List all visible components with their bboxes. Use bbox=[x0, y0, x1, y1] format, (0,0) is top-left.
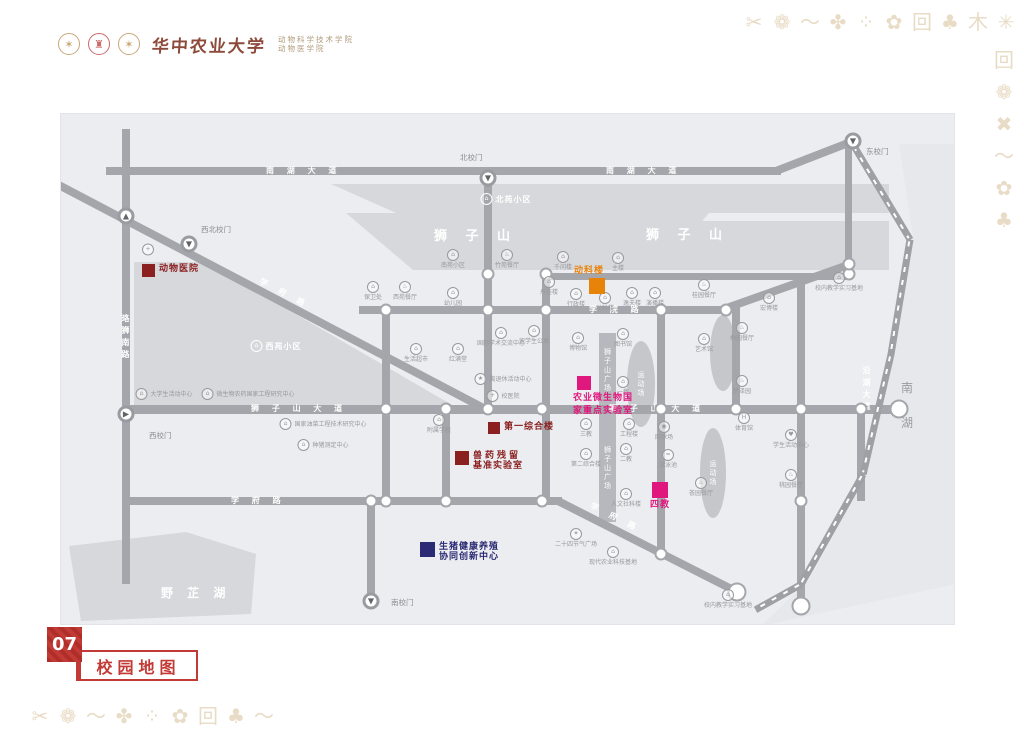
poi-building-icon: ⌂ bbox=[367, 281, 379, 293]
road-lakeside-dash-2 bbox=[887, 239, 913, 356]
poi-label: 千问楼 bbox=[554, 264, 572, 271]
poi-label: 第二综合楼 bbox=[571, 461, 601, 468]
poi-building-icon: ⌂ bbox=[297, 439, 309, 451]
college-line2: 动物医学院 bbox=[278, 44, 354, 53]
poi-label: 大学生活动中心 bbox=[150, 391, 192, 398]
map-poi: ⌂附属学校 bbox=[427, 414, 451, 434]
decor-pattern-top: ✂❁〜✤⁘✿回♣木✳✖ bbox=[742, 10, 1024, 34]
highlight-dongke-building: 动科楼 bbox=[574, 266, 605, 294]
page-header: ✶ ♜ ✶ 华中农业大学 动物科学技术学院 动物医学院 bbox=[58, 26, 354, 62]
poi-building-icon: ⌂ bbox=[447, 249, 459, 261]
poi-label: 荟园餐厅 bbox=[689, 490, 713, 497]
highlight-fourth-teaching: 四教 bbox=[652, 482, 670, 510]
poi-building-icon: ⌂ bbox=[433, 414, 445, 426]
poi-label: 微生物农药国家工程研究中心 bbox=[216, 391, 294, 398]
poi-label: 网球场 bbox=[655, 434, 673, 441]
lion-hill-west-label: 狮 子 山 bbox=[434, 225, 517, 244]
gate-南校门: ▼ bbox=[363, 593, 380, 610]
map-poi: ⌂图书馆 bbox=[614, 328, 632, 348]
road-node bbox=[482, 268, 495, 281]
map-poi: ⌂大学生活动中心 bbox=[135, 388, 192, 400]
road-xuefu bbox=[122, 497, 562, 505]
map-poi: ⌂国家油菜工程技术研究中心 bbox=[279, 418, 366, 430]
highlight-animal-hospital: 动物医院 bbox=[142, 264, 199, 277]
poi-label: 图书馆 bbox=[614, 341, 632, 348]
road-node bbox=[855, 403, 868, 416]
map-poi: ⌂种猪测定中心 bbox=[297, 439, 348, 451]
road-node bbox=[540, 304, 553, 317]
poi-label: 艺术馆 bbox=[695, 346, 713, 353]
map-poi: ≈游泳池 bbox=[659, 449, 677, 469]
poi-label: 北苑小区 bbox=[496, 196, 532, 203]
map-poi: ♨梅园餐厅 bbox=[730, 322, 754, 342]
poi-label: 演播楼 bbox=[646, 300, 664, 307]
vet-drug-lab-label-2: 基准实验室 bbox=[473, 461, 523, 471]
map-poi: ♨西苑餐厅 bbox=[393, 281, 417, 301]
poi-label: 幼儿园 bbox=[444, 300, 462, 307]
poi-label: 留学生公寓 bbox=[519, 338, 549, 345]
poi-building-icon: ⌂ bbox=[620, 488, 632, 500]
road-node bbox=[380, 495, 393, 508]
poi-building-icon: ⌂ bbox=[626, 287, 638, 299]
poi-building-icon: ⌂ bbox=[580, 418, 592, 430]
poi-building-icon: ⌂ bbox=[623, 418, 635, 430]
decor-glyph-icon: ✖ bbox=[992, 112, 1016, 136]
map-poi: ⌂保卫处 bbox=[364, 281, 382, 301]
gate-东校门: ▼ bbox=[845, 133, 862, 150]
poi-label: 附属学校 bbox=[427, 427, 451, 434]
vet-drug-lab-label-1: 兽药残留 bbox=[473, 451, 523, 461]
page-title: 校园地图 bbox=[76, 650, 198, 681]
road-name-label: 珞狮南路 bbox=[120, 314, 131, 362]
poi-building-icon: ⌂ bbox=[481, 193, 493, 205]
road-node bbox=[655, 548, 668, 561]
poi-label: 竹苑餐厅 bbox=[495, 262, 519, 269]
map-poi: ⌂艺术馆 bbox=[695, 333, 713, 353]
poi-label: 现代农业科技基地 bbox=[587, 559, 639, 566]
south-lake-label-1: 南 bbox=[901, 379, 913, 396]
decor-glyph-icon: ✿ bbox=[168, 704, 192, 728]
map-poi: ⌂博物馆 bbox=[569, 332, 587, 352]
poi-building-icon: ⌂ bbox=[617, 328, 629, 340]
poi-label: 三教 bbox=[580, 431, 592, 438]
fourth-teaching-label: 四教 bbox=[650, 500, 670, 510]
poi-label: 校医院 bbox=[501, 393, 519, 400]
road-node bbox=[792, 597, 811, 616]
map-poi: ♨荟园餐厅 bbox=[689, 477, 713, 497]
gate-北校门: ▼ bbox=[480, 170, 497, 187]
decor-glyph-icon: ♣ bbox=[938, 10, 962, 34]
map-poi: +校医院 bbox=[486, 390, 519, 402]
decor-glyph-icon: ✿ bbox=[992, 176, 1016, 200]
poi-building-icon: ⌂ bbox=[612, 252, 624, 264]
map-poi: ♨桂园餐厅 bbox=[692, 279, 716, 299]
poi-building-icon: ★ bbox=[474, 373, 486, 385]
gate-label: 南校门 bbox=[391, 597, 414, 608]
poi-building-icon: ⌂ bbox=[251, 340, 263, 352]
gate-label: 北校门 bbox=[460, 152, 483, 163]
dongke-building-marker bbox=[589, 278, 605, 294]
map-poi: ⌂演播楼 bbox=[646, 287, 664, 307]
highlight-pig-center: 生猪健康养殖 协同创新中心 bbox=[420, 542, 499, 562]
map-poi: ⌂宏博楼 bbox=[760, 292, 778, 312]
road-node bbox=[720, 304, 733, 317]
poi-building-icon: ♨ bbox=[785, 469, 797, 481]
poi-label: 动科楼 bbox=[596, 305, 614, 312]
anniversary-seal-icon: ✶ bbox=[118, 33, 140, 55]
gate-label: 西北校门 bbox=[201, 224, 231, 235]
map-poi: ⌂工程楼 bbox=[620, 418, 638, 438]
road-node bbox=[890, 400, 909, 419]
map-poi: ♥学生活动中心 bbox=[773, 429, 809, 449]
map-poi: + bbox=[142, 244, 154, 257]
decor-glyph-icon: 〜 bbox=[992, 144, 1016, 168]
road-node bbox=[795, 495, 808, 508]
decor-glyph-icon: ✤ bbox=[112, 704, 136, 728]
map-poi: ★离退休活动中心 bbox=[474, 373, 531, 385]
map-poi: ⌂幼儿园 bbox=[444, 287, 462, 307]
poi-label: 西苑餐厅 bbox=[393, 294, 417, 301]
poi-label: 行政楼 bbox=[567, 301, 585, 308]
road-node bbox=[365, 495, 378, 508]
poi-label: 桃园餐厅 bbox=[779, 482, 803, 489]
poi-label: 生活超市 bbox=[404, 356, 428, 363]
poi-label: 博物馆 bbox=[569, 345, 587, 352]
poi-label: 保卫处 bbox=[364, 294, 382, 301]
gate-西北校门: ▼ bbox=[181, 236, 198, 253]
poi-building-icon: ⌂ bbox=[580, 448, 592, 460]
decor-glyph-icon: ⁘ bbox=[140, 704, 164, 728]
poi-label: 工程楼 bbox=[620, 431, 638, 438]
road-node bbox=[536, 495, 549, 508]
map-poi: ⌂二教 bbox=[620, 443, 632, 463]
poi-building-icon: ⌂ bbox=[698, 333, 710, 345]
gate-arrow: ▲ bbox=[118, 208, 135, 225]
decor-glyph-icon: ✳ bbox=[994, 10, 1018, 34]
poi-building-icon: ⌂ bbox=[649, 287, 661, 299]
decor-glyph-icon: ✿ bbox=[882, 10, 906, 34]
yezhi-lake-label: 野 芷 湖 bbox=[161, 584, 230, 601]
road-node bbox=[482, 304, 495, 317]
map-poi: ⌂动科楼 bbox=[596, 292, 614, 312]
poi-building-icon: ⌂ bbox=[607, 546, 619, 558]
road-node bbox=[843, 258, 856, 271]
pig-center-label-1: 生猪健康养殖 bbox=[439, 542, 499, 552]
poi-label: 梅园餐厅 bbox=[730, 335, 754, 342]
poi-label: 宏博楼 bbox=[760, 305, 778, 312]
animal-hospital-label: 动物医院 bbox=[159, 264, 199, 274]
map-poi: ⌂千问楼 bbox=[554, 251, 572, 271]
road-name-label: 狮 子 山 大 道 bbox=[251, 403, 347, 414]
poi-label: 二教 bbox=[620, 456, 632, 463]
decor-glyph-icon: 回 bbox=[910, 10, 934, 34]
animal-hospital-marker bbox=[142, 264, 155, 277]
map-poi: ♨桃园餐厅 bbox=[779, 469, 803, 489]
poi-label: 校内教学实习基地 bbox=[702, 602, 754, 609]
poi-building-icon: + bbox=[142, 244, 154, 256]
road-east-gate bbox=[845, 144, 852, 264]
map-poi: ⌂北苑小区 bbox=[481, 193, 532, 205]
poi-building-icon: + bbox=[486, 390, 498, 402]
gate-label: 东校门 bbox=[866, 146, 889, 157]
poi-building-icon: ⌂ bbox=[201, 388, 213, 400]
road-lion-hill-avenue bbox=[122, 405, 906, 414]
highlight-first-complex: 第一综合楼 bbox=[488, 422, 554, 434]
poi-label: 丹桂楼 bbox=[540, 289, 558, 296]
map-poi: ⌂南苑小区 bbox=[441, 249, 465, 269]
decor-glyph-icon: 回 bbox=[196, 704, 220, 728]
decor-glyph-icon: ❁ bbox=[56, 704, 80, 728]
poi-label: 国家油菜工程技术研究中心 bbox=[294, 421, 366, 428]
map-poi: H体育馆 bbox=[735, 412, 753, 432]
poi-building-icon: ♨ bbox=[695, 477, 707, 489]
map-poi: ♨梦泽园 bbox=[733, 375, 751, 395]
poi-label: 梦泽园 bbox=[733, 388, 751, 395]
college-line1: 动物科学技术学院 bbox=[278, 35, 354, 44]
road-node bbox=[380, 304, 393, 317]
map-poi: ⌂逸夫楼 bbox=[623, 287, 641, 307]
map-poi: ⌂丹桂楼 bbox=[540, 276, 558, 296]
poi-building-icon: ♨ bbox=[736, 375, 748, 387]
poi-building-icon: ♨ bbox=[501, 249, 513, 261]
poi-label: 种猪测定中心 bbox=[312, 442, 348, 449]
page-number: 07 bbox=[47, 627, 82, 662]
poi-building-icon: ♨ bbox=[399, 281, 411, 293]
agri-micro-lab-label-2: 家重点实验室 bbox=[573, 406, 633, 416]
university-seal-icon: ✶ bbox=[58, 33, 80, 55]
decor-glyph-icon: ✤ bbox=[826, 10, 850, 34]
first-complex-marker bbox=[488, 422, 500, 434]
map-poi: ⌂第二综合楼 bbox=[571, 448, 601, 468]
decor-glyph-icon: 回 bbox=[992, 48, 1016, 72]
road-lakeside-dash-1 bbox=[850, 143, 913, 242]
agri-micro-lab-marker bbox=[577, 376, 591, 390]
road-node bbox=[795, 403, 808, 416]
poi-label: 逸夫楼 bbox=[623, 300, 641, 307]
decor-glyph-icon: ✂ bbox=[742, 10, 766, 34]
road-name-label: 南 湖 大 道 bbox=[266, 165, 341, 176]
road-name-label: 学 府 路 bbox=[231, 495, 286, 506]
lion-hill-east-label: 狮 子 山 bbox=[646, 224, 729, 243]
road-south-gate bbox=[367, 501, 375, 606]
poi-label: 体育馆 bbox=[735, 425, 753, 432]
road-node bbox=[655, 403, 668, 416]
poi-building-icon: ⌂ bbox=[447, 287, 459, 299]
poi-label: 人文社科楼 bbox=[611, 501, 641, 508]
campus-map: 狮 子 山 狮 子 山 野 芷 湖 南 湖 狮子山广场 狮子山广场 运动场 运动… bbox=[60, 113, 955, 625]
poi-label: 桂园餐厅 bbox=[692, 292, 716, 299]
poi-building-icon: ♥ bbox=[785, 429, 797, 441]
highlight-agri-micro-lab: 农业微生物国 家重点实验室 bbox=[577, 376, 633, 416]
gate-label: 西校门 bbox=[149, 430, 172, 441]
map-poi: ⌂现代农业科技基地 bbox=[587, 546, 639, 566]
decor-glyph-icon: ⁘ bbox=[854, 10, 878, 34]
decor-glyph-icon: ❁ bbox=[770, 10, 794, 34]
poi-building-icon: ♨ bbox=[698, 279, 710, 291]
road-node bbox=[482, 403, 495, 416]
poi-label: 西苑小区 bbox=[266, 343, 302, 350]
poi-building-icon: ⌂ bbox=[557, 251, 569, 263]
poi-label: 学生活动中心 bbox=[773, 442, 809, 449]
map-poi: ⌂留学生公寓 bbox=[519, 325, 549, 345]
map-poi: ⌂西苑小区 bbox=[251, 340, 302, 352]
decor-pattern-bottom: ✂❁〜✤⁘✿回♣〜 bbox=[28, 704, 276, 728]
university-name: 华中农业大学 bbox=[151, 32, 267, 57]
map-poi: ♨竹苑餐厅 bbox=[495, 249, 519, 269]
poi-building-icon: ⌂ bbox=[763, 292, 775, 304]
poi-label: 南苑小区 bbox=[441, 262, 465, 269]
decor-glyph-icon: 〜 bbox=[252, 704, 276, 728]
map-poi: ⌂人文社科楼 bbox=[611, 488, 641, 508]
gate-西校门: ▶ bbox=[118, 406, 135, 423]
map-poi: ◉网球场 bbox=[655, 421, 673, 441]
poi-building-icon: ⌂ bbox=[452, 343, 464, 355]
map-poi: ⌂红满堂 bbox=[449, 343, 467, 363]
poi-building-icon: ⌂ bbox=[279, 418, 291, 430]
road-node bbox=[440, 495, 453, 508]
poi-building-icon: ⌂ bbox=[410, 343, 422, 355]
map-poi: ⌂三教 bbox=[580, 418, 592, 438]
poi-building-icon: ⌂ bbox=[722, 589, 734, 601]
map-poi: ⌂主楼 bbox=[612, 252, 624, 272]
map-poi: ⌂校内教学实习基地 bbox=[813, 272, 865, 292]
dongke-building-label: 动科楼 bbox=[574, 266, 604, 276]
road-name-label: 南 湖 大 道 bbox=[606, 165, 681, 176]
poi-building-icon: ◉ bbox=[658, 421, 670, 433]
pig-center-marker bbox=[420, 542, 435, 557]
poi-label: 离退休活动中心 bbox=[489, 376, 531, 383]
poi-building-icon: ⌂ bbox=[572, 332, 584, 344]
decor-glyph-icon: ✂ bbox=[28, 704, 52, 728]
poi-building-icon: ⌂ bbox=[620, 443, 632, 455]
map-poi: ⌂微生物农药国家工程研究中心 bbox=[201, 388, 294, 400]
poi-building-icon: ⌂ bbox=[135, 388, 147, 400]
poi-building-icon: ⌂ bbox=[543, 276, 555, 288]
map-poi: ⌂生活超市 bbox=[404, 343, 428, 363]
pig-center-label-2: 协同创新中心 bbox=[439, 552, 499, 562]
agri-micro-lab-label-1: 农业微生物国 bbox=[573, 393, 633, 403]
poi-building-icon: H bbox=[738, 412, 750, 424]
poi-building-icon: ♨ bbox=[736, 322, 748, 334]
map-poi: ✦二十四节气广场 bbox=[555, 528, 597, 548]
decor-glyph-icon: 木 bbox=[966, 10, 990, 34]
decor-glyph-icon: 〜 bbox=[798, 10, 822, 34]
road-node bbox=[380, 403, 393, 416]
poi-building-icon: ⌂ bbox=[528, 325, 540, 337]
decor-pattern-right: 回❁✖〜✿♣ bbox=[992, 48, 1016, 232]
map-poi: ⌂校内教学实习基地 bbox=[702, 589, 754, 609]
poi-building-icon: ⌂ bbox=[495, 327, 507, 339]
sports-field-oval-3: 运动场 bbox=[700, 428, 726, 518]
decor-glyph-icon: ♣ bbox=[224, 704, 248, 728]
vet-drug-lab-marker bbox=[455, 451, 469, 465]
highlight-vet-drug-lab: 兽药残留 基准实验室 bbox=[455, 451, 523, 471]
decor-glyph-icon: 〜 bbox=[84, 704, 108, 728]
decor-glyph-icon: ❁ bbox=[992, 80, 1016, 104]
college-names: 动物科学技术学院 动物医学院 bbox=[278, 35, 354, 53]
decor-glyph-icon: ♣ bbox=[992, 208, 1016, 232]
poi-label: 游泳池 bbox=[659, 462, 677, 469]
poi-label: 主楼 bbox=[612, 265, 624, 272]
poi-building-icon: ⌂ bbox=[833, 272, 845, 284]
road-node bbox=[536, 403, 549, 416]
poi-building-icon: ≈ bbox=[662, 449, 674, 461]
road-lakeside-dash-4 bbox=[798, 473, 866, 586]
first-complex-label: 第一综合楼 bbox=[504, 422, 554, 432]
poi-building-icon: ✦ bbox=[570, 528, 582, 540]
college-crest-icon: ♜ bbox=[88, 33, 110, 55]
poi-label: 校内教学实习基地 bbox=[813, 285, 865, 292]
fourth-teaching-marker bbox=[652, 482, 668, 498]
poi-label: 红满堂 bbox=[449, 356, 467, 363]
